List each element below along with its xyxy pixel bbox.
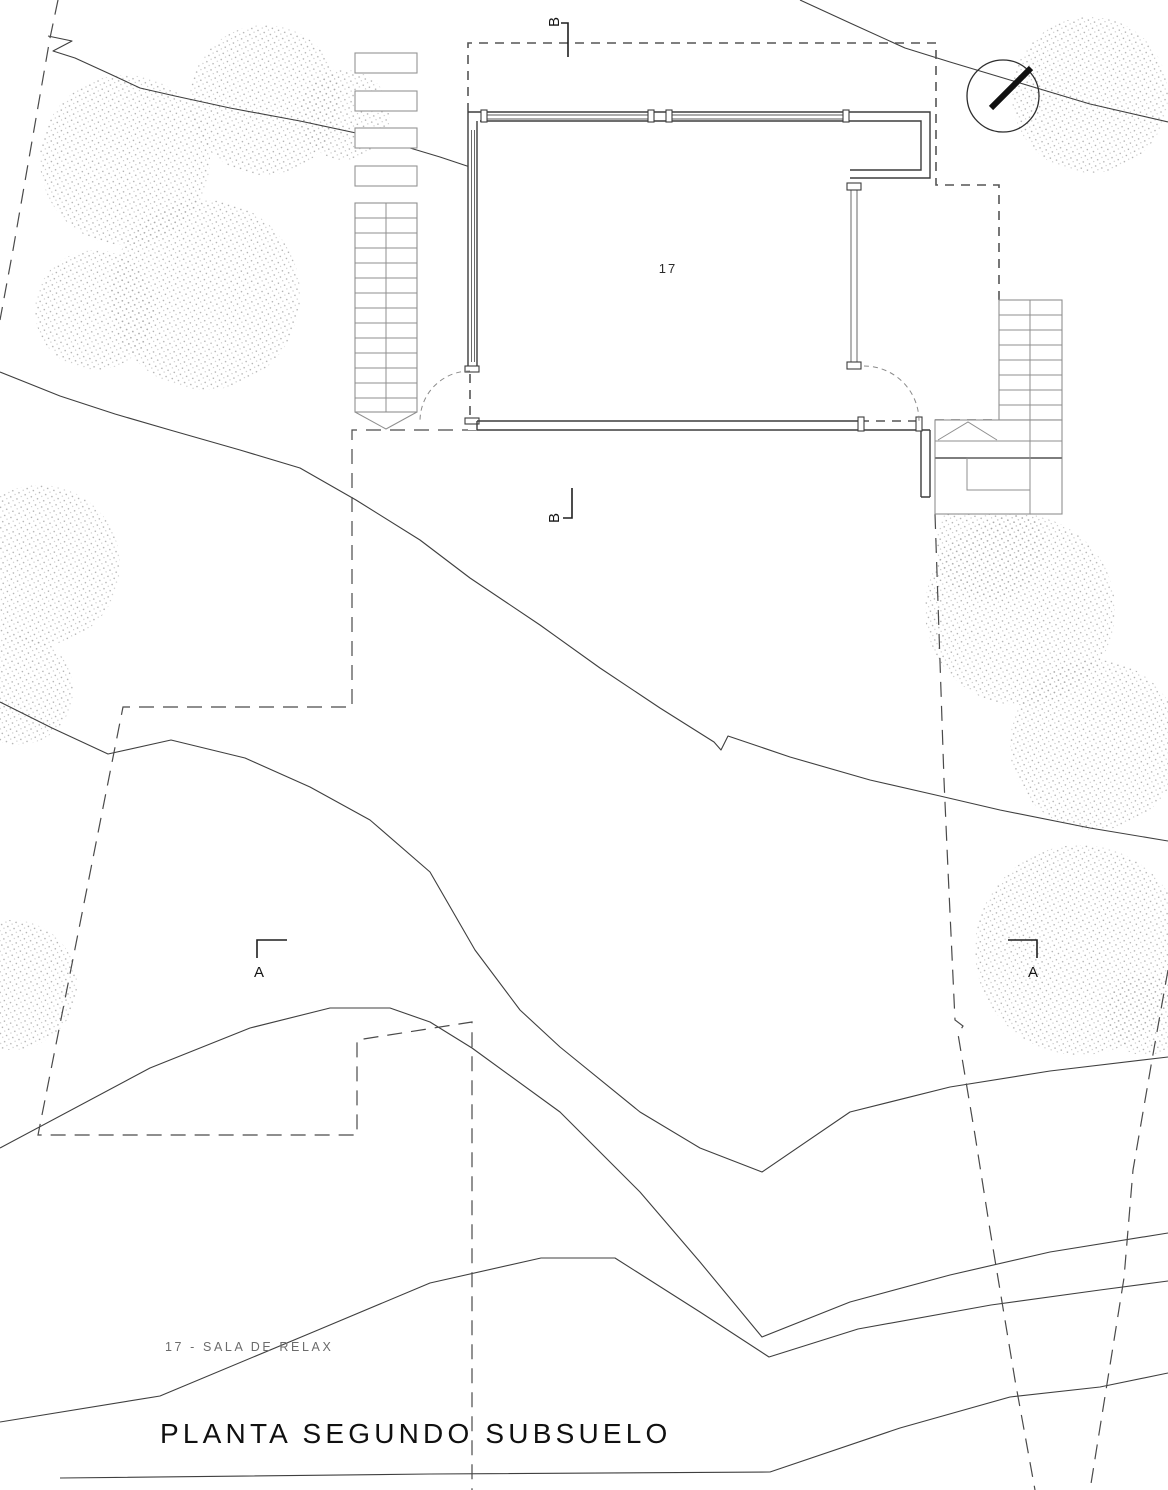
planter-bar [355,128,417,148]
window-jamb [847,362,861,369]
window-jamb [481,110,487,122]
door-swing-arc-left [420,371,470,421]
stairs-left-direction-arrow [355,412,417,429]
planter-bar [355,91,417,111]
stairs-right [935,300,1062,514]
tree-canopy [1012,17,1168,173]
section-marker-b-bottom-tick [563,488,572,518]
section-marker-a-right-label: A [1028,964,1038,981]
plan-title: PLANTA SEGUNDO SUBSUELO [160,1418,672,1449]
room-number-label: 17 [659,261,677,276]
floor-plan-svg: B B A A 17 17 - SALA DE RELAX PLANTA SEG… [0,0,1168,1490]
contour-line [0,1008,1168,1337]
section-marker-b-bottom-label: B [546,513,563,523]
window-jamb [847,183,861,190]
tree-canopy [0,485,120,645]
section-marker-b-top-label: B [546,17,563,27]
window-jamb [666,110,672,122]
section-marker-b-top-tick [561,23,568,57]
stairs-landing-outline [935,420,1062,514]
planter-bar [355,53,417,73]
legend-room-17: 17 - SALA DE RELAX [165,1340,333,1354]
plan-sheet: B B A A 17 17 - SALA DE RELAX PLANTA SEG… [0,0,1168,1490]
wall-bottom-right-return [921,430,930,497]
door-jamb [858,417,864,431]
window-jamb [843,110,849,122]
tree-canopy [0,920,77,1050]
stairs-left [355,203,417,429]
planter-bar [355,166,417,186]
section-marker-a-left-tick [257,940,287,958]
building [420,110,930,497]
room-floor [468,112,930,430]
tree-canopy [35,250,155,370]
tree-canopy [0,635,73,745]
window-jamb [648,110,654,122]
section-marker-a-left-label: A [254,964,264,981]
